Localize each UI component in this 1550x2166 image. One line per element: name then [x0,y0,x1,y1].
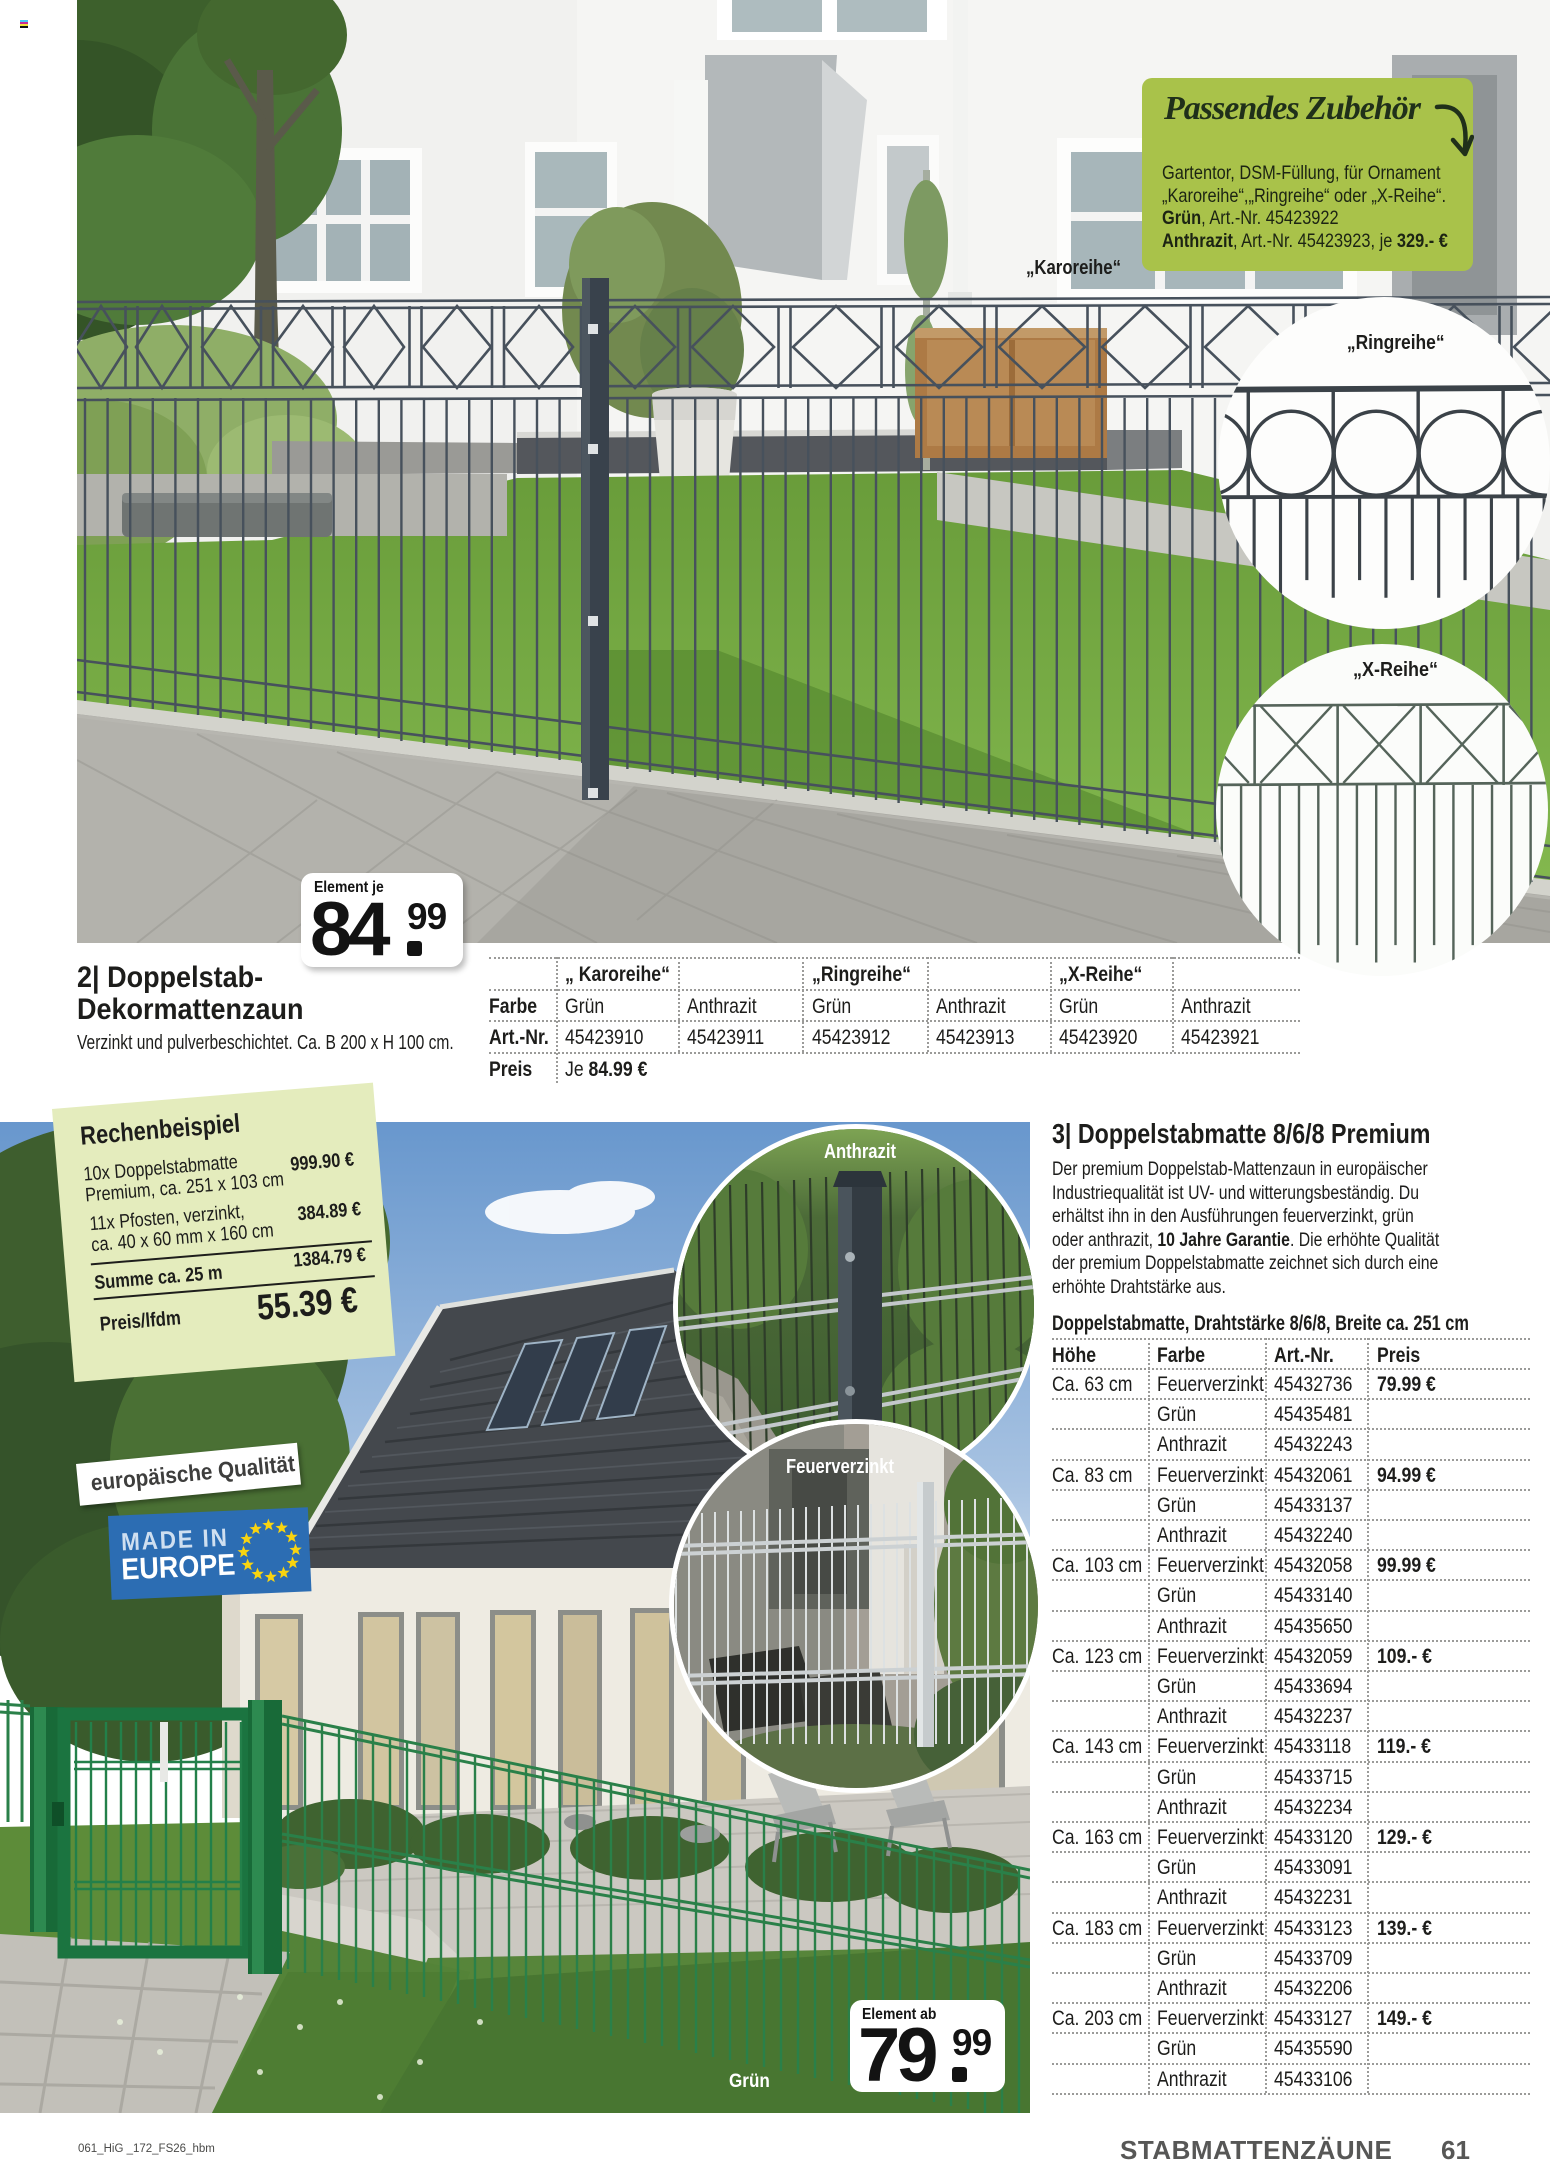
svg-text:„Karoreihe“: „Karoreihe“ [1026,257,1121,279]
svg-text:Feuerverzinkt: Feuerverzinkt [786,1456,894,1478]
svg-text:„X-Reihe“: „X-Reihe“ [1353,659,1438,681]
svg-text:„Ringreihe“: „Ringreihe“ [1347,331,1445,354]
svg-text:Anthrazit: Anthrazit [824,1141,896,1163]
